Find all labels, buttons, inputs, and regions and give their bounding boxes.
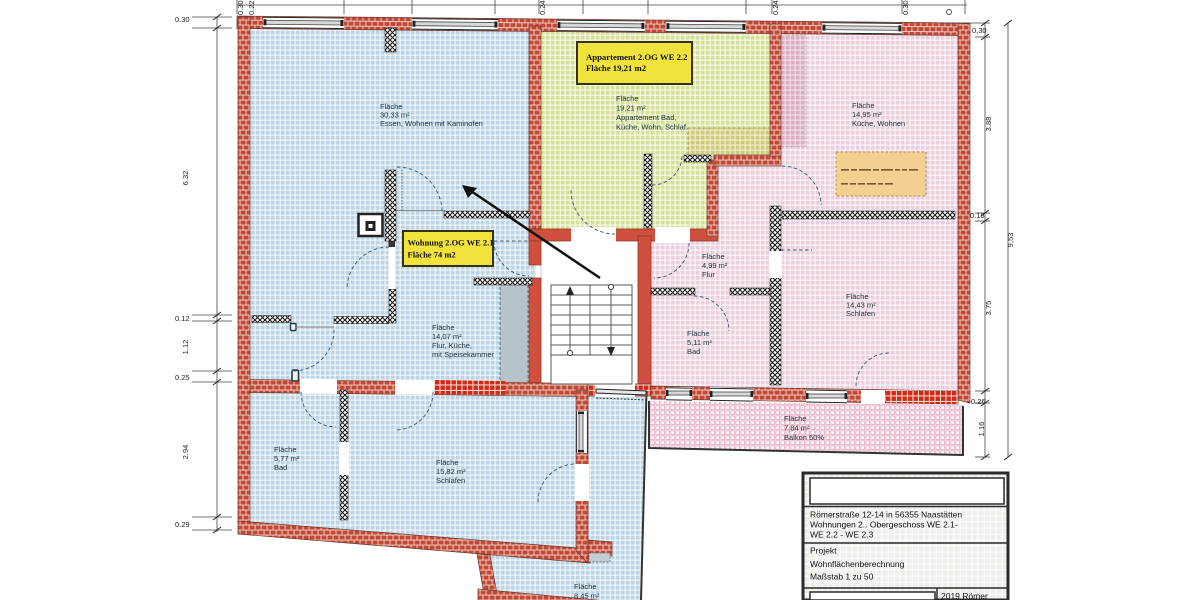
svg-text:Fläche: Fläche [702, 252, 725, 261]
svg-text:Fläche 74 m2: Fläche 74 m2 [408, 250, 456, 260]
svg-text:3.75: 3.75 [984, 301, 993, 316]
svg-text:1.16: 1.16 [977, 422, 986, 437]
svg-text:Fläche 19,21 m2: Fläche 19,21 m2 [586, 63, 646, 73]
svg-text:2019 Römer: 2019 Römer [941, 591, 988, 600]
svg-text:0.25: 0.25 [175, 373, 190, 382]
svg-text:0.26: 0.26 [971, 397, 986, 406]
svg-text:Fläche: Fläche [436, 458, 459, 467]
svg-text:14,07 m²: 14,07 m² [432, 332, 462, 341]
svg-text:Fläche: Fläche [687, 329, 710, 338]
svg-text:Fläche: Fläche [784, 414, 807, 423]
svg-text:4,99 m²: 4,99 m² [702, 261, 728, 270]
svg-text:Fläche: Fläche [432, 323, 455, 332]
svg-text:Fläche: Fläche [852, 101, 875, 110]
svg-text:1.12: 1.12 [181, 340, 190, 355]
svg-text:5,11 m²: 5,11 m² [687, 338, 712, 347]
svg-text:2.94: 2.94 [181, 445, 190, 460]
svg-text:Bad: Bad [687, 347, 700, 356]
svg-text:Flur, Küche,: Flur, Küche, [432, 341, 472, 350]
svg-text:5,77 m²: 5,77 m² [274, 454, 300, 463]
svg-text:Wohnungen 2.. Obergeschoss WE: Wohnungen 2.. Obergeschoss WE 2.1- [810, 520, 958, 530]
svg-text:Schlafen: Schlafen [846, 309, 875, 318]
svg-text:Wohnung 2.OG WE 2.1: Wohnung 2.OG WE 2.1 [408, 238, 494, 248]
svg-text:Fläche: Fläche [574, 582, 597, 591]
svg-text:Schlafen: Schlafen [436, 476, 465, 485]
svg-text:WE 2.2 - WE 2.3: WE 2.2 - WE 2.3 [810, 530, 874, 540]
svg-text:Küche, Wohn, Schlaf.: Küche, Wohn, Schlaf. [616, 123, 688, 132]
svg-text:9,53: 9,53 [1006, 233, 1015, 248]
svg-text:3.88: 3.88 [984, 117, 993, 132]
svg-text:Balkon 50%: Balkon 50% [784, 433, 824, 442]
svg-text:19,21 m²: 19,21 m² [616, 104, 646, 113]
svg-text:15,82 m²: 15,82 m² [436, 467, 466, 476]
svg-text:7,84 m²: 7,84 m² [784, 424, 810, 433]
svg-text:Römerstraße 12-14 in 56355 Naa: Römerstraße 12-14 in 56355 Naastätten [810, 510, 962, 520]
svg-text:0.30: 0.30 [236, 0, 245, 15]
svg-text:Essen, Wohnen mit Kaminofen: Essen, Wohnen mit Kaminofen [380, 119, 483, 128]
svg-text:0.18: 0.18 [970, 211, 985, 220]
svg-text:Küche, Wohnen: Küche, Wohnen [852, 119, 905, 128]
svg-text:0.12: 0.12 [175, 314, 190, 323]
svg-text:Fläche: Fläche [616, 94, 639, 103]
svg-text:6.32: 6.32 [181, 171, 190, 186]
svg-text:Appartement Bad,: Appartement Bad, [616, 113, 676, 122]
svg-text:Wohnflächenberechnung: Wohnflächenberechnung [810, 559, 905, 569]
svg-text:Appartement 2.OG WE 2.2: Appartement 2.OG WE 2.2 [586, 52, 687, 62]
svg-text:Projekt: Projekt [810, 546, 837, 556]
svg-text:0.30: 0.30 [175, 15, 190, 24]
svg-text:14,95 m²: 14,95 m² [852, 110, 882, 119]
svg-text:Maßstab 1 zu 50: Maßstab 1 zu 50 [810, 572, 874, 582]
svg-text:Flur: Flur [702, 270, 715, 279]
svg-text:0.22: 0.22 [247, 0, 256, 15]
svg-text:Fläche: Fläche [274, 445, 297, 454]
svg-text:0,30: 0,30 [972, 26, 987, 35]
svg-text:Bad: Bad [274, 463, 287, 472]
svg-text:0.30: 0.30 [901, 0, 910, 15]
svg-text:0.24: 0.24 [771, 0, 780, 15]
svg-text:8,45 m²: 8,45 m² [574, 592, 600, 600]
svg-text:0.29: 0.29 [175, 520, 190, 529]
svg-text:mit Speisekammer: mit Speisekammer [432, 350, 495, 359]
svg-text:0.24: 0.24 [538, 0, 547, 15]
